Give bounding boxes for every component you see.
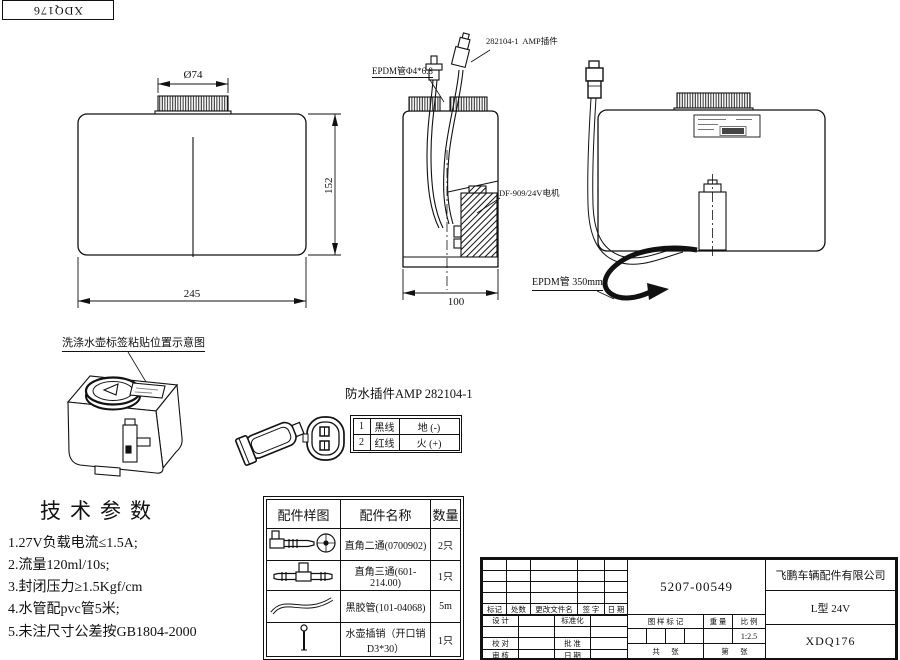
sheet-page: 第 张	[704, 644, 766, 659]
label-amp-connector: 282104-1 AMP插件	[486, 37, 558, 47]
label-epdm-hose: EPDM管 350mm	[532, 277, 603, 291]
sticker-label-box	[694, 115, 760, 137]
parts-table: 配件样图 配件名称 数量	[263, 496, 464, 660]
stamp-table: 5207-00549 图 样 标 记 重 量 比 例 1:2.5 共 张 第 张	[627, 559, 766, 659]
parts-row: 直角二通(0700902) 2只	[267, 529, 461, 561]
label-epdm-tube: EPDM管Φ4*6.8	[372, 66, 433, 78]
model-name: L型 24V	[766, 591, 896, 625]
label-motor: DF-909/24V电机	[499, 189, 559, 199]
pin-drawing	[268, 623, 340, 653]
isometric-view-drawing	[68, 352, 182, 476]
tech-param-item: 2.流量120ml/10s;	[8, 558, 110, 574]
company-name: 飞鹏车辆配件有限公司	[766, 560, 896, 591]
corner-code: XDQ176	[33, 3, 83, 18]
parts-row: 黑胶管(101-04068) 5m	[267, 591, 461, 623]
company-table: 飞鹏车辆配件有限公司 L型 24V XDQ176	[765, 559, 896, 659]
pinout-row: 1 黑线 地 (-)	[353, 418, 459, 434]
revision-table: 标记 处数 更改文件名 签 字 日 期	[482, 559, 628, 616]
tech-param-item: 1.27V负载电流≤1.5A;	[8, 536, 138, 552]
amp-connector-drawing	[235, 415, 344, 466]
elbow-fitting-drawing	[268, 529, 340, 557]
tech-param-item: 5.未注尺寸公差按GB1804-2000	[8, 625, 197, 641]
pinout-row: 2 红线 火 (+)	[353, 434, 459, 450]
sheet-total: 共 张	[628, 644, 704, 659]
dim-height: 152	[323, 178, 336, 195]
signature-table: 设 计 标准化 校 对 批 准 审 核 日 期	[482, 614, 628, 660]
tech-param-item: 3.封闭压力≥1.5Kgf/cm	[8, 580, 142, 596]
title-block: 标记 处数 更改文件名 签 字 日 期 设 计 标准化 校 对 批 准 审 核 …	[480, 557, 898, 660]
dim-width-side: 100	[403, 283, 498, 321]
engineering-drawing-sheet: XDQ176 Ø74 152 245 100 EPDM管Φ4*6.8 28210…	[0, 0, 900, 660]
part-number: 5207-00549	[628, 560, 766, 615]
parts-header-row: 配件样图 配件名称 数量	[267, 500, 461, 529]
rear-view-drawing	[586, 61, 825, 300]
dim-cap-diameter: Ø74	[158, 69, 228, 82]
corner-code-box: XDQ176	[2, 0, 114, 20]
front-view-drawing	[78, 78, 341, 308]
hose-drawing	[268, 591, 340, 619]
parts-row: 直角三通(601-214.00) 1只	[267, 561, 461, 591]
tee-fitting-drawing	[268, 561, 340, 587]
iso-view-title: 洗涤水壶标签粘贴位置示意图	[62, 337, 205, 352]
tech-param-item: 4.水管配pvc管5米;	[8, 602, 120, 618]
drawing-number: XDQ176	[766, 625, 896, 659]
parts-row: 水壶插销（开口销 D3*30） 1只	[267, 623, 461, 657]
tech-params-title: 技术参数	[40, 499, 160, 523]
dim-width-front: 245	[78, 288, 306, 301]
connector-section-title: 防水插件AMP 282104-1	[345, 387, 473, 401]
pinout-table: 1 黑线 地 (-) 2 红线 火 (+)	[350, 415, 462, 453]
drawing-scale: 1:2.5	[733, 629, 766, 644]
